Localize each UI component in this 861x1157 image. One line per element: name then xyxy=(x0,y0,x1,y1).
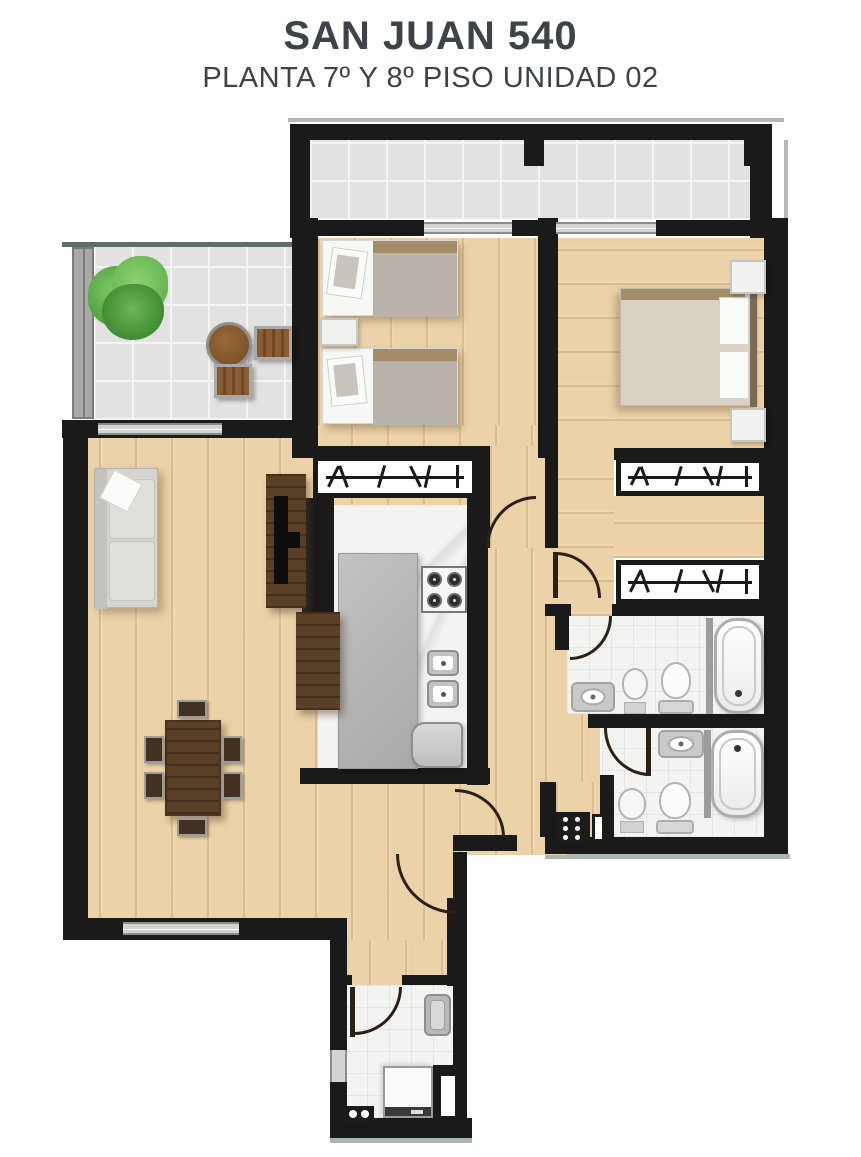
page-subtitle: PLANTA 7º Y 8º PISO UNIDAD 02 xyxy=(0,62,861,95)
plant xyxy=(88,256,174,342)
wall-segment xyxy=(764,458,788,854)
wall-segment xyxy=(555,616,569,650)
bathroom1-toilet xyxy=(658,662,694,714)
electrical-panel xyxy=(556,812,590,844)
bathroom1-divider xyxy=(706,618,713,714)
slab-edge-bath xyxy=(545,854,790,859)
refrigerator xyxy=(411,722,463,768)
slab-edge-top xyxy=(288,118,784,122)
living-window xyxy=(123,922,239,935)
dressing-floor-b xyxy=(614,496,764,558)
nightstand xyxy=(730,408,766,442)
wall-segment xyxy=(467,495,488,785)
wall-segment xyxy=(545,440,558,548)
wall-segment xyxy=(524,140,544,166)
bathroom1-bidet xyxy=(620,668,650,714)
kitchen-sink xyxy=(427,680,459,708)
wall-segment xyxy=(290,124,772,140)
wall-segment xyxy=(453,835,517,851)
laundry-taps xyxy=(344,1106,374,1123)
stove xyxy=(421,566,467,613)
terrace-sliding-door xyxy=(98,423,222,435)
dining-chair xyxy=(144,772,164,799)
dining-chair xyxy=(222,772,242,799)
single-bed xyxy=(322,240,458,316)
patio-chair xyxy=(214,364,252,398)
panel-box xyxy=(592,814,605,842)
dressing-door-leaf xyxy=(553,552,558,598)
bathroom2-bidet xyxy=(616,788,648,833)
dining-chair xyxy=(177,818,207,836)
master-balcony-window xyxy=(556,222,656,234)
bathroom2-divider xyxy=(704,730,711,818)
wardrobe-master-1 xyxy=(616,458,764,496)
wall-segment xyxy=(588,714,764,728)
wall-segment xyxy=(302,498,334,614)
bathroom2-toilet xyxy=(656,782,694,834)
wall-segment xyxy=(63,420,88,940)
dining-chair xyxy=(222,736,242,763)
bathroom2-bathtub xyxy=(711,730,764,818)
laundry-sink xyxy=(424,994,451,1036)
slab-edge-laundry xyxy=(330,1138,472,1143)
wall-segment xyxy=(540,782,556,837)
dining-table xyxy=(165,720,221,816)
dining-chair xyxy=(144,736,164,763)
kitchen-sink xyxy=(427,650,459,676)
nightstand xyxy=(320,318,358,346)
wardrobe-bedroom2 xyxy=(313,456,477,498)
wall-segment xyxy=(538,218,558,458)
wall-segment xyxy=(402,975,467,985)
duct-shaft xyxy=(441,1076,455,1116)
nightstand xyxy=(730,260,766,294)
wall-segment xyxy=(345,975,352,985)
laundry-window xyxy=(330,1050,347,1082)
page-title: SAN JUAN 540 xyxy=(0,14,861,59)
wardrobe-master-2 xyxy=(616,560,764,604)
wall-segment xyxy=(612,604,764,616)
bathroom2-sink xyxy=(658,730,704,758)
double-bed xyxy=(620,288,758,406)
bedroom2-balcony-window xyxy=(424,222,512,234)
wall-segment xyxy=(300,768,490,784)
patio-table xyxy=(206,322,252,368)
kitchen-island xyxy=(338,553,418,769)
dining-chair xyxy=(177,700,207,718)
bathroom2-door-leaf xyxy=(646,728,651,776)
wall-segment xyxy=(656,220,772,236)
floor-plan-page: SAN JUAN 540 PLANTA 7º Y 8º PISO UNIDAD … xyxy=(0,0,861,1157)
wall-segment xyxy=(764,218,788,458)
bathroom1-bathtub xyxy=(714,618,764,714)
wall-segment xyxy=(453,985,467,1067)
laundry-door-leaf xyxy=(350,987,355,1037)
patio-chair xyxy=(254,326,292,360)
single-bed xyxy=(322,348,458,424)
washing-machine xyxy=(383,1066,433,1118)
wall-segment xyxy=(300,446,480,456)
bathroom1-sink xyxy=(571,682,615,712)
headboard xyxy=(750,289,757,407)
sofa xyxy=(94,468,158,608)
wall-segment xyxy=(744,140,772,166)
wall-segment xyxy=(330,937,347,1120)
kitchen-desk xyxy=(296,612,340,710)
wall-segment xyxy=(545,604,571,616)
tv-console xyxy=(266,474,306,608)
